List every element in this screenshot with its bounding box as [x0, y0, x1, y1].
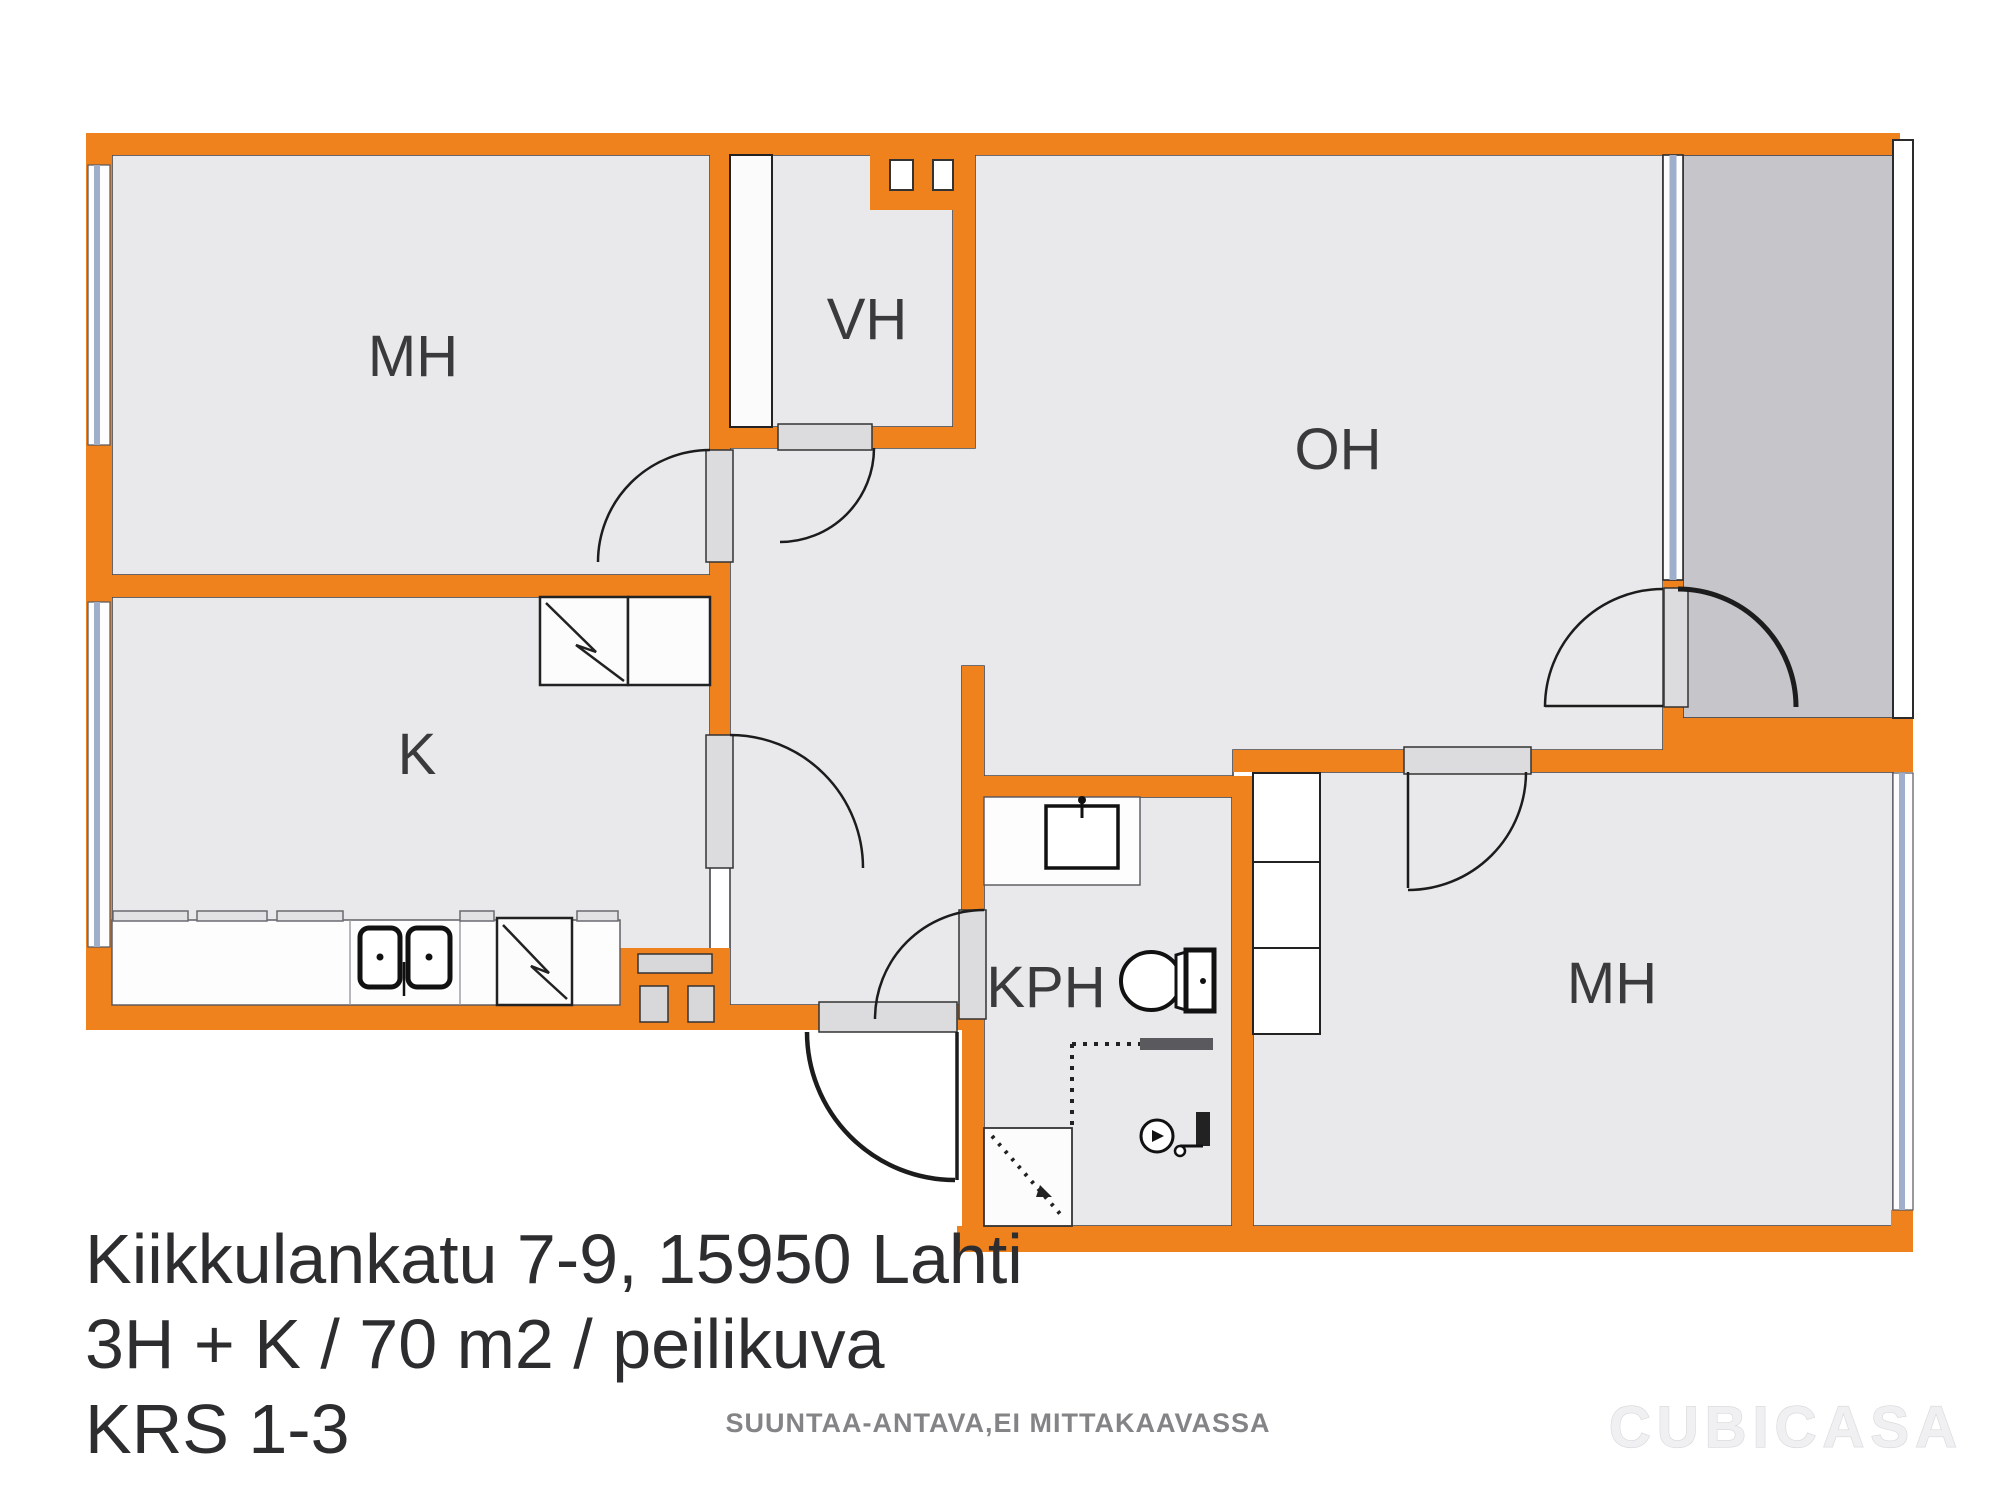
bathroom-door-threshold [959, 910, 986, 1019]
bedroom-1-door-threshold [706, 450, 733, 562]
room-label-bathroom: KPH [986, 955, 1105, 1020]
wall-balcony-bottom [1682, 718, 1913, 772]
kitchen-appliances-top [540, 597, 710, 685]
wall-vh-bottom-left [710, 427, 778, 448]
wall-bedroom2-right-corner [1891, 1210, 1913, 1252]
wall-chimney-block [870, 155, 975, 210]
wall-bottom-right [957, 1226, 1913, 1252]
wall-top [86, 133, 1900, 155]
floor-plan-drawing: MH VH OH K KPH MH Kiikkulankatu 7-9, 159… [0, 0, 1999, 1500]
room-label-kitchen: K [398, 722, 437, 787]
wall-balcony-connector [1663, 707, 1683, 772]
disclaimer-text: SUUNTAA-ANTAVA,EI MITTAKAAVASSA [726, 1408, 1271, 1438]
cabinet-tick [197, 911, 267, 921]
closet-hall-door-threshold [778, 424, 872, 450]
balcony-floor [1683, 155, 1893, 718]
bedroom-2-door-threshold [1404, 747, 1531, 774]
entry-door-arc [807, 1032, 955, 1180]
tap-connection-icon [1196, 1112, 1210, 1146]
wall-bedroom1-right-upper [710, 155, 730, 450]
wall-bathroom-west-upper [962, 666, 984, 910]
room-floors [112, 155, 1893, 1226]
toilet-tank-icon [1186, 950, 1214, 1011]
freezer-icon [628, 597, 710, 685]
kitchen-counter [112, 911, 620, 1005]
sink-drain-icon [426, 954, 433, 961]
closet-cabinet-icon [730, 155, 772, 427]
entry-door-threshold [819, 1002, 957, 1032]
vent-slot-icon [688, 986, 714, 1022]
address-line-2: 3H + K / 70 m2 / peilikuva [85, 1305, 885, 1383]
vent-slot-icon [640, 986, 668, 1022]
bathroom-faucet-knob-icon [1078, 796, 1086, 804]
balcony-door-leaf [1664, 588, 1688, 707]
room-label-closet-hall: VH [827, 287, 908, 352]
vent-slot-icon [638, 954, 712, 973]
wardrobe-icon [1253, 773, 1320, 1034]
cabinet-tick [460, 911, 494, 921]
wall-vh-bottom-right [872, 427, 975, 448]
room-label-bedroom-2: MH [1567, 951, 1657, 1016]
cabinet-tick [577, 911, 618, 921]
wall-bathroom-east [1232, 776, 1253, 1252]
toilet-flush-icon [1200, 978, 1206, 984]
address-line-3: KRS 1-3 [85, 1390, 350, 1468]
wall-bathroom-top [984, 776, 1253, 797]
bedroom-2-wardrobes [1253, 773, 1320, 1034]
balcony-outer-wall [1893, 140, 1913, 718]
wall-bedroom2-top-right [1528, 750, 1682, 772]
floor-plan-page: MH VH OH K KPH MH Kiikkulankatu 7-9, 159… [0, 0, 1999, 1500]
kitchen-door-threshold [706, 735, 733, 868]
address-line-1: Kiikkulankatu 7-9, 15950 Lahti [85, 1220, 1023, 1298]
cabinet-tick [113, 911, 188, 921]
toilet-bowl-icon [1121, 952, 1181, 1010]
vent-opening-icon [890, 160, 913, 190]
wall-bedroom2-top-left [1233, 750, 1407, 772]
wall-kitchen-right [710, 597, 730, 735]
vent-opening-icon [933, 160, 953, 190]
room-label-living-room: OH [1295, 417, 1382, 482]
wall-bathroom-west-lower [962, 1019, 984, 1226]
wall-bedroom1-right-lower [710, 562, 730, 575]
sink-drain-icon [377, 954, 384, 961]
room-label-bedroom-1: MH [368, 324, 458, 389]
shower-wall-icon [1140, 1038, 1213, 1050]
cabinet-tick [277, 911, 343, 921]
wall-bedroom1-kitchen [86, 575, 730, 597]
tap-valve-icon [1175, 1146, 1185, 1156]
cubicasa-logo: CUBICASA [1609, 1395, 1963, 1460]
